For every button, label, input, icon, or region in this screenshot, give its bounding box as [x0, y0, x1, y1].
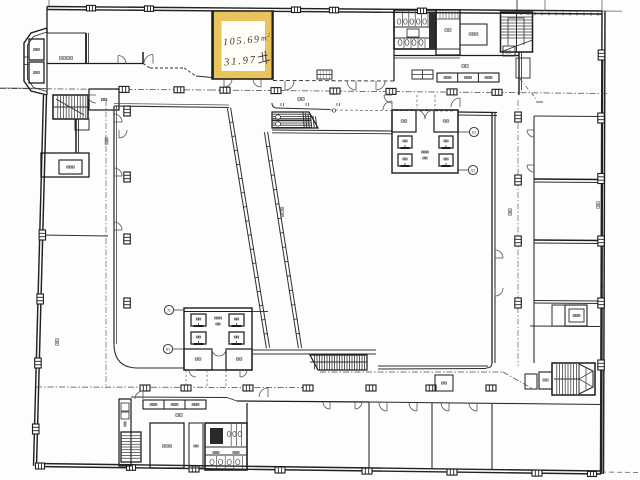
svg-text:H1: H1: [166, 348, 171, 352]
svg-text:J1: J1: [167, 309, 171, 313]
svg-text:Q1: Q1: [471, 169, 476, 173]
svg-text:S1: S1: [472, 131, 476, 135]
